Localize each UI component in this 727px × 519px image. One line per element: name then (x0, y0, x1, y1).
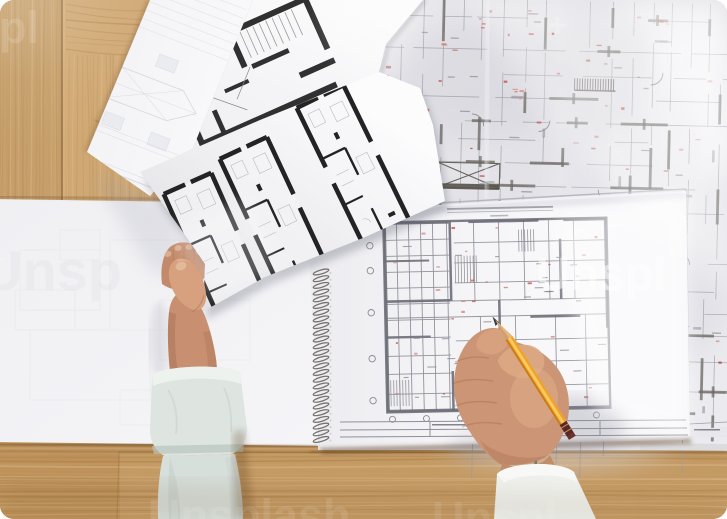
svg-text:Unsplash: Unsplash (148, 490, 351, 519)
svg-text:+: + (548, 7, 567, 43)
svg-text:Unsp: Unsp (0, 239, 122, 302)
svg-text:+: + (0, 241, 7, 277)
svg-text:Unspl: Unspl (432, 492, 557, 519)
svg-text:Unspl: Unspl (536, 247, 667, 300)
svg-text:spl: spl (0, 2, 39, 53)
